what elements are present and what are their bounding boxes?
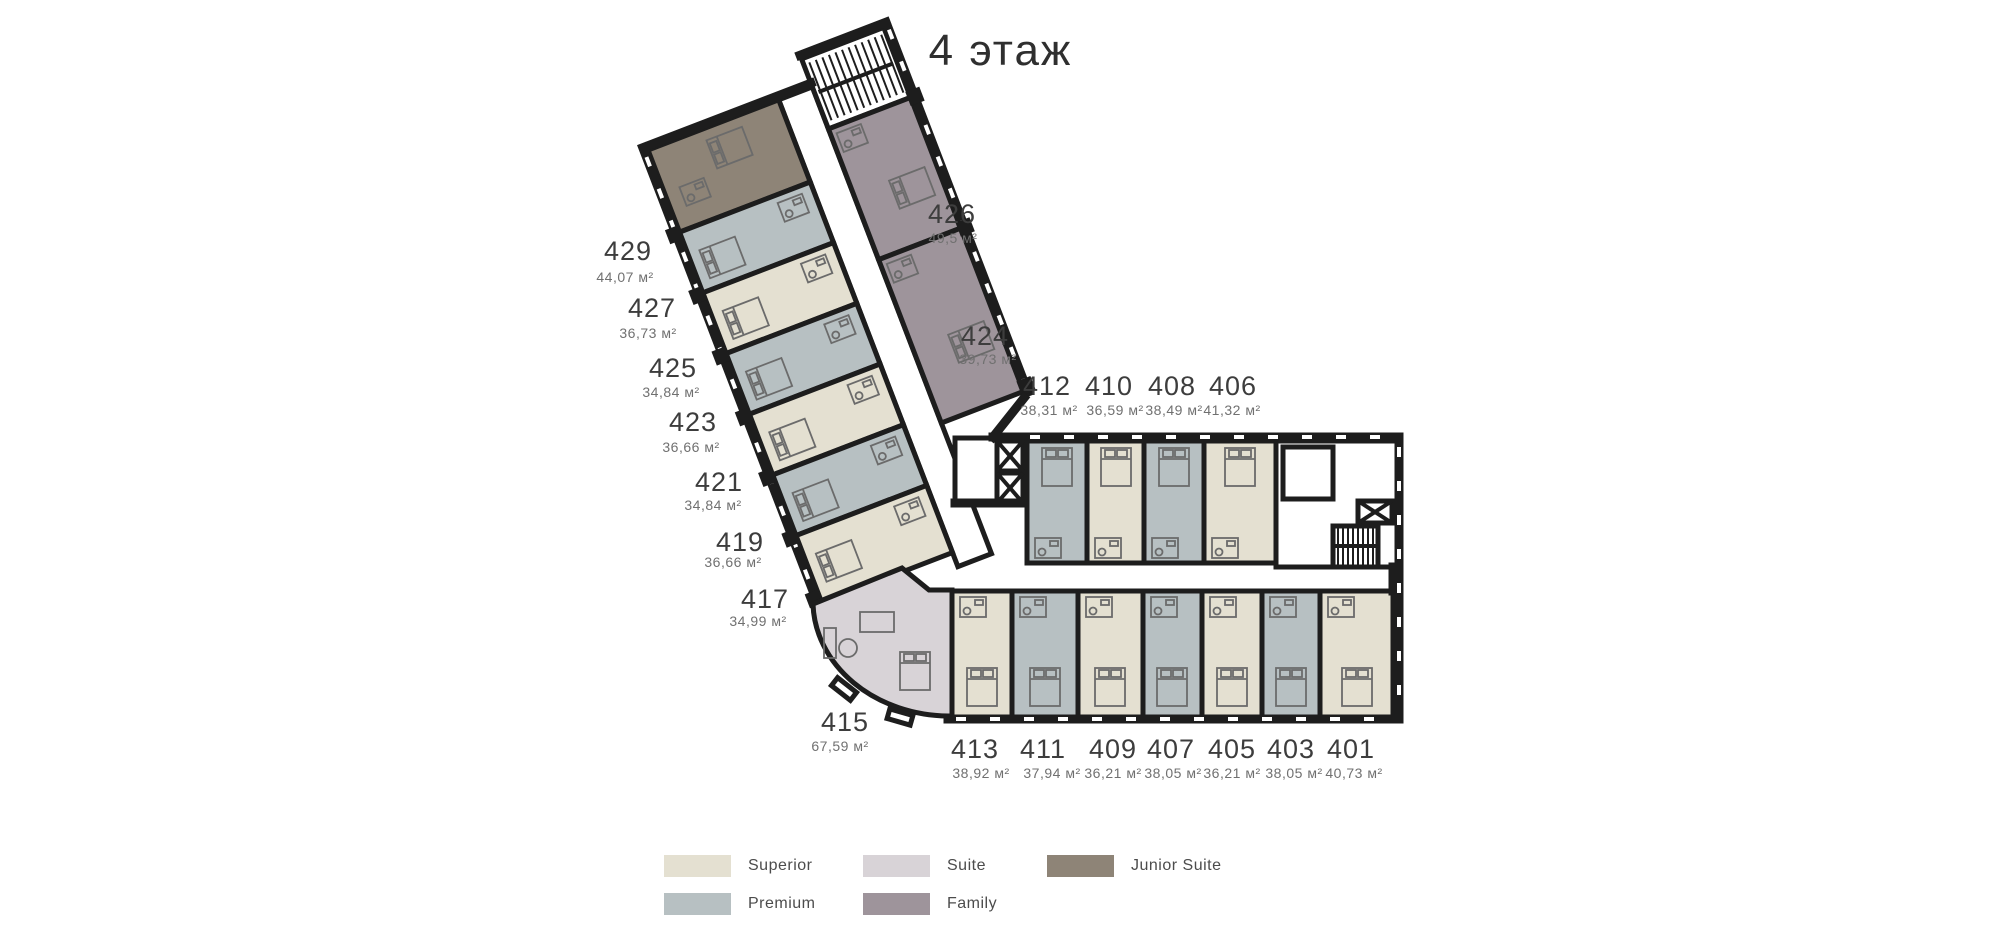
room-412-label: 412 — [1023, 371, 1071, 401]
room-408-area: 38,49 м² — [1145, 402, 1202, 418]
core-room — [1283, 447, 1333, 499]
room-412-area: 38,31 м² — [1020, 402, 1077, 418]
room-406-area: 41,32 м² — [1203, 402, 1260, 418]
room-423-area: 36,66 м² — [662, 439, 719, 455]
room-421-label: 421 — [695, 467, 743, 497]
room-423-label: 423 — [669, 407, 717, 437]
room-409-label: 409 — [1089, 734, 1137, 764]
floor-plan-page: 4 этаж — [0, 0, 2001, 927]
diagonal-wing — [624, 19, 1085, 621]
room-413-shape — [952, 591, 1012, 719]
room-409-area: 36,21 м² — [1084, 765, 1141, 781]
room-410-label: 410 — [1085, 371, 1133, 401]
room-413-area: 38,92 м² — [952, 765, 1009, 781]
room-405-label: 405 — [1208, 734, 1256, 764]
room-427-area: 36,73 м² — [619, 325, 676, 341]
legend-label-superior: Superior — [748, 857, 812, 875]
room-417-label: 417 — [741, 584, 789, 614]
legend-label-suite: Suite — [947, 857, 986, 875]
room-411-area: 37,94 м² — [1023, 765, 1080, 781]
room-405-shape — [1202, 591, 1262, 719]
legend-item-junior-suite: Junior Suite — [1047, 855, 1222, 877]
elevator-icon — [997, 441, 1023, 503]
room-411-label: 411 — [1020, 734, 1066, 764]
room-427-label: 427 — [628, 293, 676, 323]
legend-item-superior: Superior — [664, 855, 812, 877]
legend-label-junior-suite: Junior Suite — [1131, 857, 1222, 875]
room-407-area: 38,05 м² — [1144, 765, 1201, 781]
legend-swatch-superior — [664, 855, 731, 877]
core-stairs — [1333, 526, 1378, 567]
legend-label-family: Family — [947, 895, 997, 913]
room-409-shape — [1078, 591, 1143, 719]
legend-item-suite: Suite — [863, 855, 986, 877]
room-426-label: 426 — [928, 199, 976, 229]
room-407-label: 407 — [1147, 734, 1195, 764]
room-426-area: 49,5 м² — [929, 230, 978, 246]
floor-plan: 429 44,07 м² 427 36,73 м² 425 34,84 м² 4… — [0, 0, 2001, 927]
room-403-label: 403 — [1267, 734, 1315, 764]
room-410-area: 36,59 м² — [1086, 402, 1143, 418]
room-413-label: 413 — [951, 734, 999, 764]
room-405-area: 36,21 м² — [1203, 765, 1260, 781]
room-421-area: 34,84 м² — [684, 497, 741, 513]
room-424-area: 39,73 м² — [959, 351, 1016, 367]
room-415-label: 415 — [821, 707, 869, 737]
legend-item-premium: Premium — [664, 893, 816, 915]
legend-item-family: Family — [863, 893, 997, 915]
room-429-area: 44,07 м² — [596, 269, 653, 285]
legend-swatch-suite — [863, 855, 930, 877]
room-419-area: 36,66 м² — [704, 554, 761, 570]
legend-swatch-premium — [664, 893, 731, 915]
room-411-shape — [1012, 591, 1078, 719]
legend-swatch-junior-suite — [1047, 855, 1114, 877]
room-417-area: 34,99 м² — [729, 613, 786, 629]
legend-swatch-family — [863, 893, 930, 915]
room-425-label: 425 — [649, 353, 697, 383]
room-419-label: 419 — [716, 527, 764, 557]
room-401-area: 40,73 м² — [1325, 765, 1382, 781]
room-415-area: 67,59 м² — [811, 738, 868, 754]
room-424-label: 424 — [961, 321, 1009, 351]
horizontal-wing — [948, 398, 1399, 719]
room-425-area: 34,84 м² — [642, 384, 699, 400]
room-406-label: 406 — [1209, 371, 1257, 401]
elevator-icon — [1358, 501, 1392, 523]
room-401-label: 401 — [1327, 734, 1375, 764]
room-408-label: 408 — [1148, 371, 1196, 401]
utility-room — [955, 438, 997, 504]
legend-label-premium: Premium — [748, 895, 816, 913]
room-403-area: 38,05 м² — [1265, 765, 1322, 781]
room-429-label: 429 — [604, 236, 652, 266]
